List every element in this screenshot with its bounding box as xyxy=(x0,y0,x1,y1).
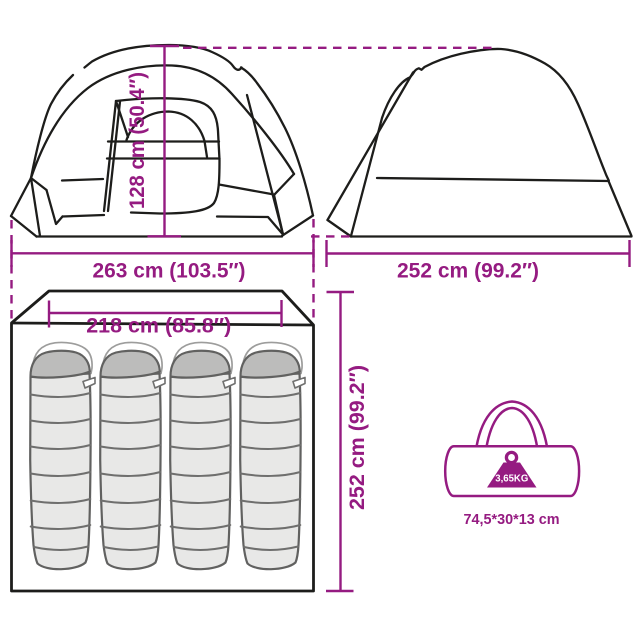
svg-text:252 cm (99.2″): 252 cm (99.2″) xyxy=(345,365,369,510)
svg-text:128 cm (50.4″): 128 cm (50.4″) xyxy=(125,72,149,209)
svg-text:218 cm (85.8″): 218 cm (85.8″) xyxy=(86,314,231,338)
svg-text:74,5*30*13 cm: 74,5*30*13 cm xyxy=(464,511,560,528)
svg-text:3,65KG: 3,65KG xyxy=(495,473,528,485)
svg-text:252 cm (99.2″): 252 cm (99.2″) xyxy=(397,259,539,283)
svg-text:263 cm (103.5″): 263 cm (103.5″) xyxy=(93,259,246,283)
